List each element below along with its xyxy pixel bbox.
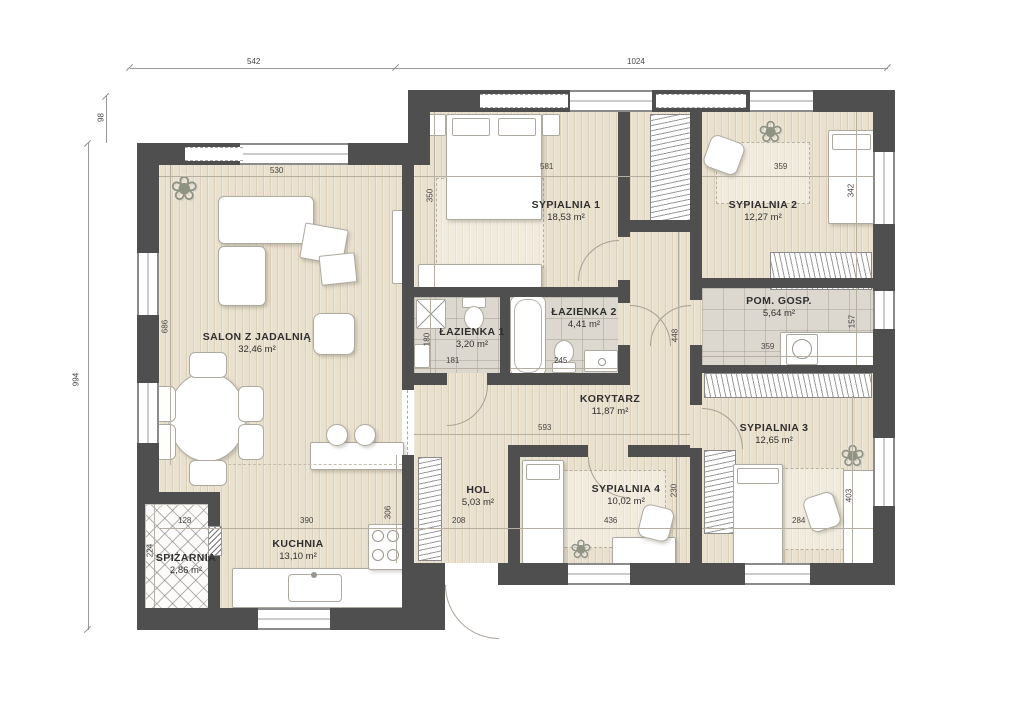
dining-chair xyxy=(238,424,264,460)
dimension-line xyxy=(414,528,690,529)
dimension-line xyxy=(88,143,89,630)
dimension-label: 436 xyxy=(604,516,617,525)
room-area: 18,53 m² xyxy=(496,212,636,223)
wardrobe xyxy=(418,457,442,561)
dimension-line xyxy=(856,112,857,278)
window xyxy=(570,90,652,112)
dimension-line xyxy=(396,455,397,563)
faucet xyxy=(311,572,317,578)
kitchen-sink xyxy=(288,574,342,602)
wall xyxy=(402,455,414,563)
dimension-label: 994 xyxy=(72,365,81,395)
room-name: SYPIALNIA 3 xyxy=(704,422,844,434)
dining-chair xyxy=(189,352,227,378)
wall xyxy=(430,563,895,585)
lintel xyxy=(656,94,746,108)
room-area: 32,46 m² xyxy=(187,344,327,355)
dimension-line xyxy=(159,176,402,177)
wall xyxy=(702,365,873,373)
pillow xyxy=(498,118,536,136)
burner xyxy=(387,530,399,542)
room-area: 4,41 m² xyxy=(524,319,644,330)
dimension-label: 181 xyxy=(446,356,459,365)
dimension-line xyxy=(702,528,873,529)
room-name: SYPIALNIA 1 xyxy=(496,199,636,211)
room-area: 5,64 m² xyxy=(719,308,839,319)
stove xyxy=(368,524,404,570)
lintel xyxy=(185,147,243,161)
dimension-label: 390 xyxy=(300,516,313,525)
pillow xyxy=(452,118,490,136)
room-name: KORYTARZ xyxy=(540,393,680,405)
wall xyxy=(137,143,159,504)
dimension-label: 686 xyxy=(161,312,170,342)
wall xyxy=(508,445,588,457)
burner xyxy=(387,549,399,561)
dimension-label: 593 xyxy=(538,423,551,432)
room-area: 11,87 m² xyxy=(540,406,680,417)
open-boundary xyxy=(228,464,402,465)
wall xyxy=(145,492,220,504)
dimension-tick xyxy=(84,626,91,633)
room-name: SYPIALNIA 2 xyxy=(693,199,833,211)
bar-stool xyxy=(326,424,348,446)
entrance-door-arc xyxy=(445,585,499,639)
room-label-korytarz: KORYTARZ 11,87 m² xyxy=(540,393,680,417)
dimension-label: 208 xyxy=(452,516,465,525)
nightstand xyxy=(542,114,560,136)
room-name: ŁAZIENKA 2 xyxy=(524,306,644,318)
wall xyxy=(702,278,873,288)
dimension-label: 359 xyxy=(774,162,787,171)
room-name: POM. GOSP. xyxy=(719,295,839,307)
room-label-hol: HOL 5,03 m² xyxy=(418,484,538,508)
dimension-line xyxy=(414,368,500,369)
wall xyxy=(618,280,630,303)
wardrobe xyxy=(704,373,872,398)
dimension-label: 542 xyxy=(247,57,260,66)
room-name: SPIŻARNIA xyxy=(126,552,246,564)
wall xyxy=(208,504,220,526)
window xyxy=(258,608,330,630)
dimension-label: 448 xyxy=(671,321,680,351)
dimension-label: 342 xyxy=(847,176,856,206)
dining-table xyxy=(168,372,246,462)
room-name: HOL xyxy=(418,484,538,496)
plant-icon: ❀ xyxy=(570,536,592,562)
desk xyxy=(612,537,676,565)
window xyxy=(137,383,159,443)
exterior-door xyxy=(873,291,895,329)
dimension-line xyxy=(170,165,171,465)
room-area: 13,10 m² xyxy=(228,551,368,562)
dimension-label: 128 xyxy=(178,516,191,525)
burner xyxy=(372,549,384,561)
room-label-spizarnia: SPIŻARNIA 2,86 m² xyxy=(126,552,246,576)
burner xyxy=(372,530,384,542)
dimension-line xyxy=(510,368,618,369)
dimension-label: 1024 xyxy=(627,57,645,66)
kitchen-island xyxy=(310,442,404,470)
dimension-label: 230 xyxy=(670,476,679,506)
room-label-pomgosp: POM. GOSP. 5,64 m² xyxy=(719,295,839,319)
washing-machine xyxy=(786,334,818,365)
wall xyxy=(618,345,630,385)
dimension-label: 224 xyxy=(146,536,155,566)
dining-chair xyxy=(189,460,227,486)
sofa xyxy=(218,196,314,244)
pillow xyxy=(737,468,779,484)
plant-icon: ❀ xyxy=(758,118,783,148)
wall xyxy=(508,457,520,563)
window xyxy=(873,152,895,224)
dimension-label: 350 xyxy=(426,181,435,211)
room-label-sypialnia1: SYPIALNIA 1 18,53 m² xyxy=(496,199,636,223)
dimension-label: 245 xyxy=(554,356,567,365)
room-name: KUCHNIA xyxy=(228,538,368,550)
dresser xyxy=(418,264,542,288)
dimension-label: 98 xyxy=(97,103,106,133)
window xyxy=(240,143,348,165)
nightstand xyxy=(428,114,446,136)
dimension-line xyxy=(159,528,402,529)
pillow xyxy=(526,464,560,480)
dimension-line xyxy=(414,176,650,177)
dimension-label: 403 xyxy=(845,481,854,511)
room-label-salon: SALON Z JADALNIĄ 32,46 m² xyxy=(187,331,327,355)
wall xyxy=(487,373,630,385)
room-label-lazienka2: ŁAZIENKA 2 4,41 m² xyxy=(524,306,644,330)
room-area: 5,03 m² xyxy=(418,497,538,508)
dimension-line xyxy=(414,434,690,435)
bar-stool xyxy=(354,424,376,446)
wardrobe xyxy=(704,450,736,534)
wall xyxy=(402,165,414,390)
wall xyxy=(690,345,702,405)
open-boundary xyxy=(407,390,408,455)
room-label-kuchnia: KUCHNIA 13,10 m² xyxy=(228,538,368,562)
entrance-door-opening xyxy=(445,563,498,585)
room-label-sypialnia2: SYPIALNIA 2 12,27 m² xyxy=(693,199,833,223)
room-label-sypialnia3: SYPIALNIA 3 12,65 m² xyxy=(704,422,844,446)
dimension-label: 359 xyxy=(761,342,774,351)
window xyxy=(137,253,159,315)
room-area: 12,27 m² xyxy=(693,212,833,223)
dimension-label: 180 xyxy=(423,325,432,355)
dining-chair xyxy=(238,386,264,422)
plant-icon: ❀ xyxy=(170,172,199,206)
dimension-label: 581 xyxy=(540,162,553,171)
room-name: SALON Z JADALNIĄ xyxy=(187,331,327,343)
pillow xyxy=(832,134,871,150)
dimension-label: 157 xyxy=(848,307,857,337)
wall xyxy=(402,287,630,297)
window xyxy=(745,563,810,585)
dimension-line xyxy=(676,457,677,563)
dimension-line xyxy=(106,96,107,143)
window xyxy=(568,563,630,585)
dimension-label: 306 xyxy=(384,498,393,528)
sink-drain xyxy=(598,358,606,366)
wall xyxy=(628,445,690,457)
room-area: 2,86 m² xyxy=(126,565,246,576)
dimension-tick xyxy=(884,64,891,71)
wall xyxy=(402,373,447,385)
dimension-line xyxy=(702,356,873,357)
room-area: 12,65 m² xyxy=(704,435,844,446)
window xyxy=(873,438,895,506)
dimension-label: 530 xyxy=(270,166,283,175)
dimension-line xyxy=(396,68,888,69)
floor-plan: ❀ ❀ ❀ ❀ SALON Z JADALNIĄ 32,46 m² SYPIAL… xyxy=(0,0,1024,724)
sofa xyxy=(218,246,266,306)
lintel xyxy=(480,94,568,108)
dimension-label: 284 xyxy=(792,516,805,525)
dimension-line xyxy=(130,68,396,69)
coffee-table xyxy=(319,252,358,286)
dimension-line xyxy=(852,396,853,563)
window xyxy=(750,90,813,112)
